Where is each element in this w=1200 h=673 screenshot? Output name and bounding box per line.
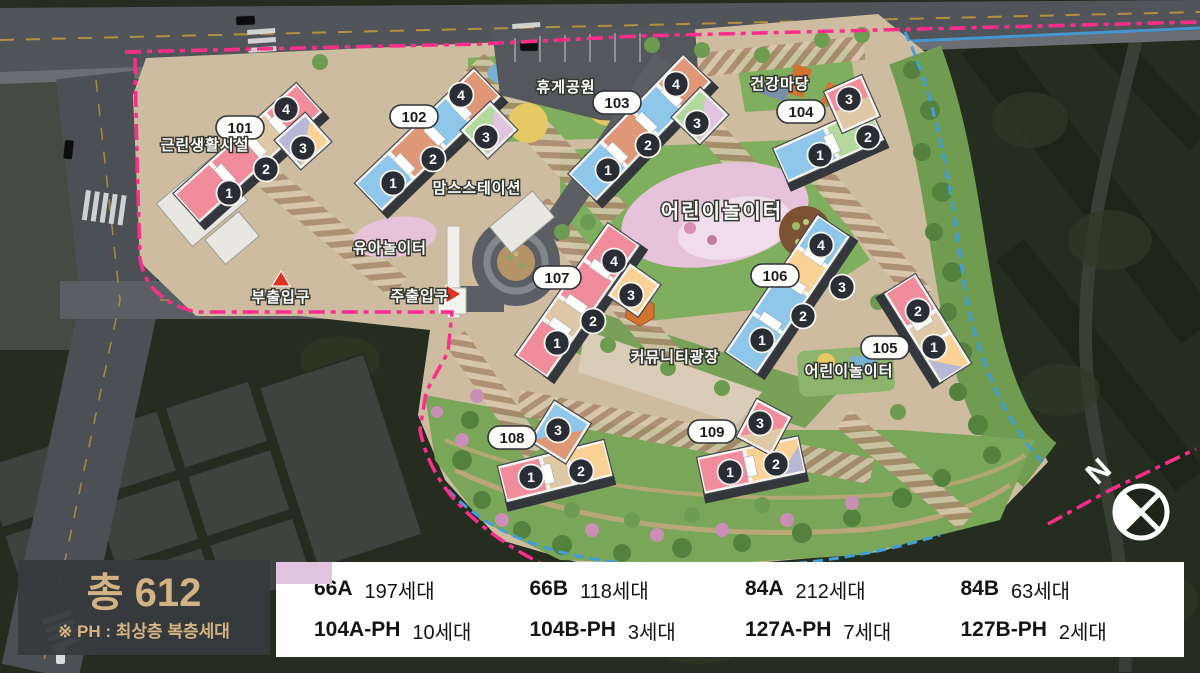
svg-text:1: 1 [389,175,397,191]
svg-text:107: 107 [544,270,569,287]
svg-text:3: 3 [299,140,307,156]
legend-count: 212세대 [796,575,866,604]
svg-text:3: 3 [482,129,490,145]
label-toddler-playground: 유아놀이터 [353,240,427,257]
svg-text:104: 104 [788,104,814,121]
total-units-value: 총 612 [87,573,202,613]
svg-text:4: 4 [672,76,680,92]
svg-text:2: 2 [589,313,597,329]
legend-code: 104A-PH [314,618,400,642]
svg-text:108: 108 [499,430,524,447]
legend-count: 118세대 [580,575,649,604]
legend-item-127a-ph: 127A-PH 7세대 [745,616,961,645]
svg-text:3: 3 [554,422,562,438]
svg-text:4: 4 [457,87,465,103]
svg-text:2: 2 [429,151,437,167]
svg-text:2: 2 [644,137,652,153]
svg-text:1: 1 [758,332,766,348]
legend-code: 127B-PH [961,618,1047,642]
svg-text:3: 3 [693,115,701,131]
legend-code: 84A [745,577,784,601]
label-children-playground-upper: 어린이놀이터 [661,200,783,223]
svg-text:103: 103 [604,95,629,112]
legend-count: 7세대 [843,616,891,645]
svg-text:2: 2 [772,456,780,472]
unit-type-legend: 66A 197세대 66B 118세대 84A 212세대 84B 63세대 1… [276,562,1184,657]
ph-note: ※ PH : 최상층 복층세대 [58,617,230,642]
legend-item-127b-ph: 127B-PH 2세대 [961,616,1177,645]
label-community-plaza: 커뮤니티광장 [631,348,720,366]
legend-item-104b-ph: 104B-PH 3세대 [530,616,746,645]
legend-count: 3세대 [628,616,676,645]
svg-text:3: 3 [838,279,846,295]
svg-text:1: 1 [604,162,612,178]
svg-text:1: 1 [930,339,938,355]
label-rest-park: 휴게공원 [536,79,595,96]
svg-text:4: 4 [610,253,618,269]
svg-text:2: 2 [262,161,270,177]
label-main-entrance: 주출입구 [390,288,449,305]
label-children-playground-lower: 어린이놀이터 [805,362,894,380]
svg-text:3: 3 [627,287,635,303]
legend-item-104a-ph: 104A-PH 10세대 [314,616,530,645]
svg-text:1: 1 [726,464,734,480]
legend-item-84a: 84A 212세대 [745,575,961,604]
svg-text:4: 4 [817,237,825,253]
label-moms-station: 맘스스테이션 [433,179,522,197]
svg-text:1: 1 [527,469,535,485]
label-health-yard: 건강마당 [750,75,809,93]
svg-text:1: 1 [553,335,561,351]
svg-text:109: 109 [699,424,724,441]
legend-item-84b: 84B 63세대 [961,575,1177,604]
site-plan-poster: 1 2 3 4 1 2 3 4 1 2 3 4 1 2 3 1 2 1 2 3 … [0,0,1200,673]
svg-text:2: 2 [799,308,807,324]
legend-count: 10세대 [412,616,471,645]
svg-text:105: 105 [872,340,897,357]
legend-count: 2세대 [1059,616,1107,645]
svg-text:2: 2 [864,129,872,145]
car [63,140,74,160]
legend-code: 104B-PH [530,618,616,642]
svg-text:1: 1 [816,147,824,163]
legend-count: 63세대 [1011,575,1070,604]
svg-text:3: 3 [756,415,764,431]
legend-count: 197세대 [365,575,435,604]
legend-code: 66B [530,577,569,601]
svg-text:3: 3 [845,91,853,107]
legend-code: 84B [961,577,1000,601]
car [236,16,255,26]
legend-item-66b: 66B 118세대 [530,575,746,604]
legend-swatch-127b-ph [276,562,332,584]
label-neighborhood-facility: 근린생활시설 [161,136,250,154]
svg-text:1: 1 [225,185,233,201]
svg-text:106: 106 [762,268,787,285]
svg-text:101: 101 [227,120,252,137]
legend-item-66a: 66A 197세대 [314,575,530,604]
label-sub-entrance: 부출입구 [251,289,310,306]
svg-text:102: 102 [401,109,426,126]
svg-text:2: 2 [577,463,585,479]
total-units-box: 총 612 ※ PH : 최상층 복층세대 [18,560,270,655]
legend-code: 127A-PH [745,618,831,642]
svg-text:4: 4 [282,101,290,117]
svg-text:2: 2 [914,303,922,319]
